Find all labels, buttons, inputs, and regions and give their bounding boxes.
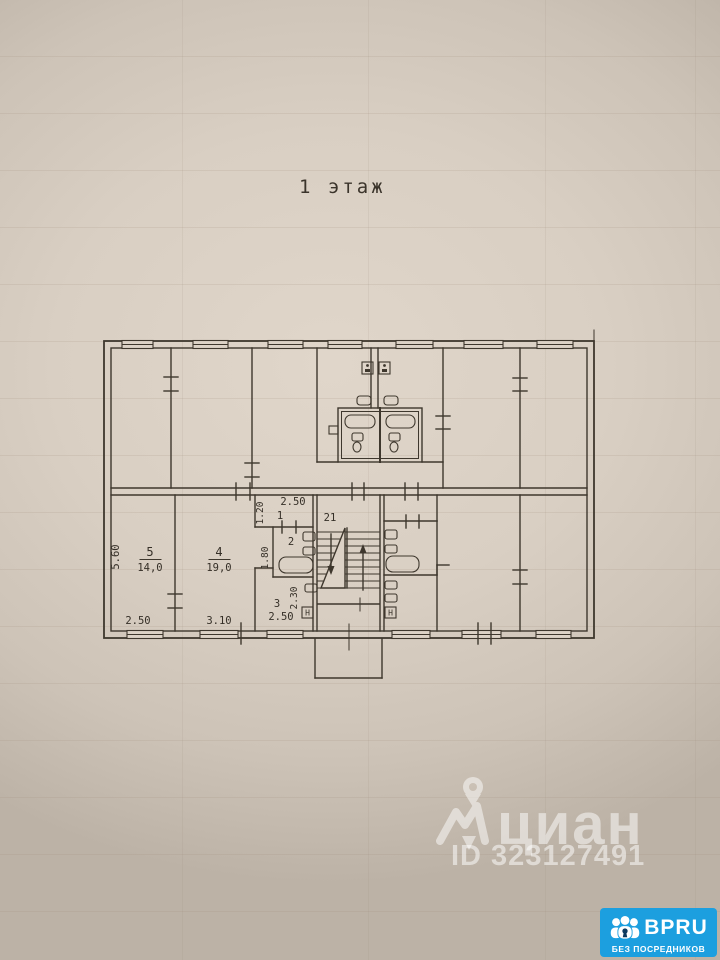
stairwell-number: 21 xyxy=(324,512,337,524)
bath-height-dim: 1.80 xyxy=(260,546,271,569)
svg-text:Н: Н xyxy=(305,609,310,618)
bathroom-2-fixtures xyxy=(279,532,317,592)
window xyxy=(392,631,430,639)
stove-icon xyxy=(385,594,397,602)
people-icon xyxy=(609,914,641,941)
window xyxy=(328,341,362,349)
window xyxy=(200,631,238,639)
room5-height-dim: 5.60 xyxy=(110,544,122,569)
hall-width-dim: 2.50 xyxy=(280,496,305,508)
room5-width-dim: 2.50 xyxy=(125,615,150,627)
stair-cut xyxy=(321,528,345,588)
toilet-icon xyxy=(352,433,363,452)
bathtub-icon xyxy=(279,557,313,573)
window xyxy=(462,631,501,639)
bathtub-icon xyxy=(345,415,375,428)
entrance-porch xyxy=(315,624,382,678)
window xyxy=(122,341,153,349)
bpru-brand-text: BPRU xyxy=(644,917,708,938)
window xyxy=(537,341,573,349)
sink-icon xyxy=(329,426,338,434)
sink-icon xyxy=(384,396,398,405)
kitchen-height-dim: 2.30 xyxy=(289,586,300,609)
room4-width-dim: 3.10 xyxy=(206,615,231,627)
window xyxy=(536,631,571,639)
listing-id: ID 323127491 xyxy=(451,842,645,871)
window xyxy=(267,631,303,639)
bathroom-right-fixtures xyxy=(385,530,419,602)
floorplan-photo: 1 этаж xyxy=(0,0,720,960)
window xyxy=(268,341,303,349)
bathtub-icon xyxy=(386,556,419,572)
vent-shaft-icon xyxy=(379,362,390,374)
stove-icon xyxy=(305,584,317,592)
toilet-icon xyxy=(385,530,397,539)
central-wall xyxy=(111,488,587,495)
room5-area: 14,0 xyxy=(137,562,162,574)
window xyxy=(464,341,503,349)
kitchen-number: 3 xyxy=(274,598,280,610)
room4-number: 4 xyxy=(215,545,222,559)
room5-number: 5 xyxy=(146,545,153,559)
bathrooms-upper xyxy=(329,362,422,462)
bpru-tagline: БЕЗ ПОСРЕДНИКОВ xyxy=(612,944,705,954)
staircase xyxy=(318,528,379,611)
svg-text:Н: Н xyxy=(388,609,393,618)
room4-area: 19,0 xyxy=(206,562,231,574)
stove-icon xyxy=(385,581,397,589)
kitchen-width-dim: 2.50 xyxy=(268,611,293,623)
sink-icon xyxy=(385,545,397,553)
sink-icon xyxy=(357,396,371,405)
window xyxy=(396,341,433,349)
hall-height-dim: 1.20 xyxy=(255,501,266,524)
bpru-badge: BPRU БЕЗ ПОСРЕДНИКОВ xyxy=(600,908,717,957)
toilet-icon xyxy=(389,433,400,452)
window xyxy=(127,631,163,639)
bathtub-icon xyxy=(386,415,415,428)
window xyxy=(193,341,228,349)
bath-number: 2 xyxy=(288,536,294,548)
hatch-left: Н xyxy=(302,607,313,618)
hall-number: 1 xyxy=(277,510,283,522)
hatch-right: Н xyxy=(385,607,396,618)
